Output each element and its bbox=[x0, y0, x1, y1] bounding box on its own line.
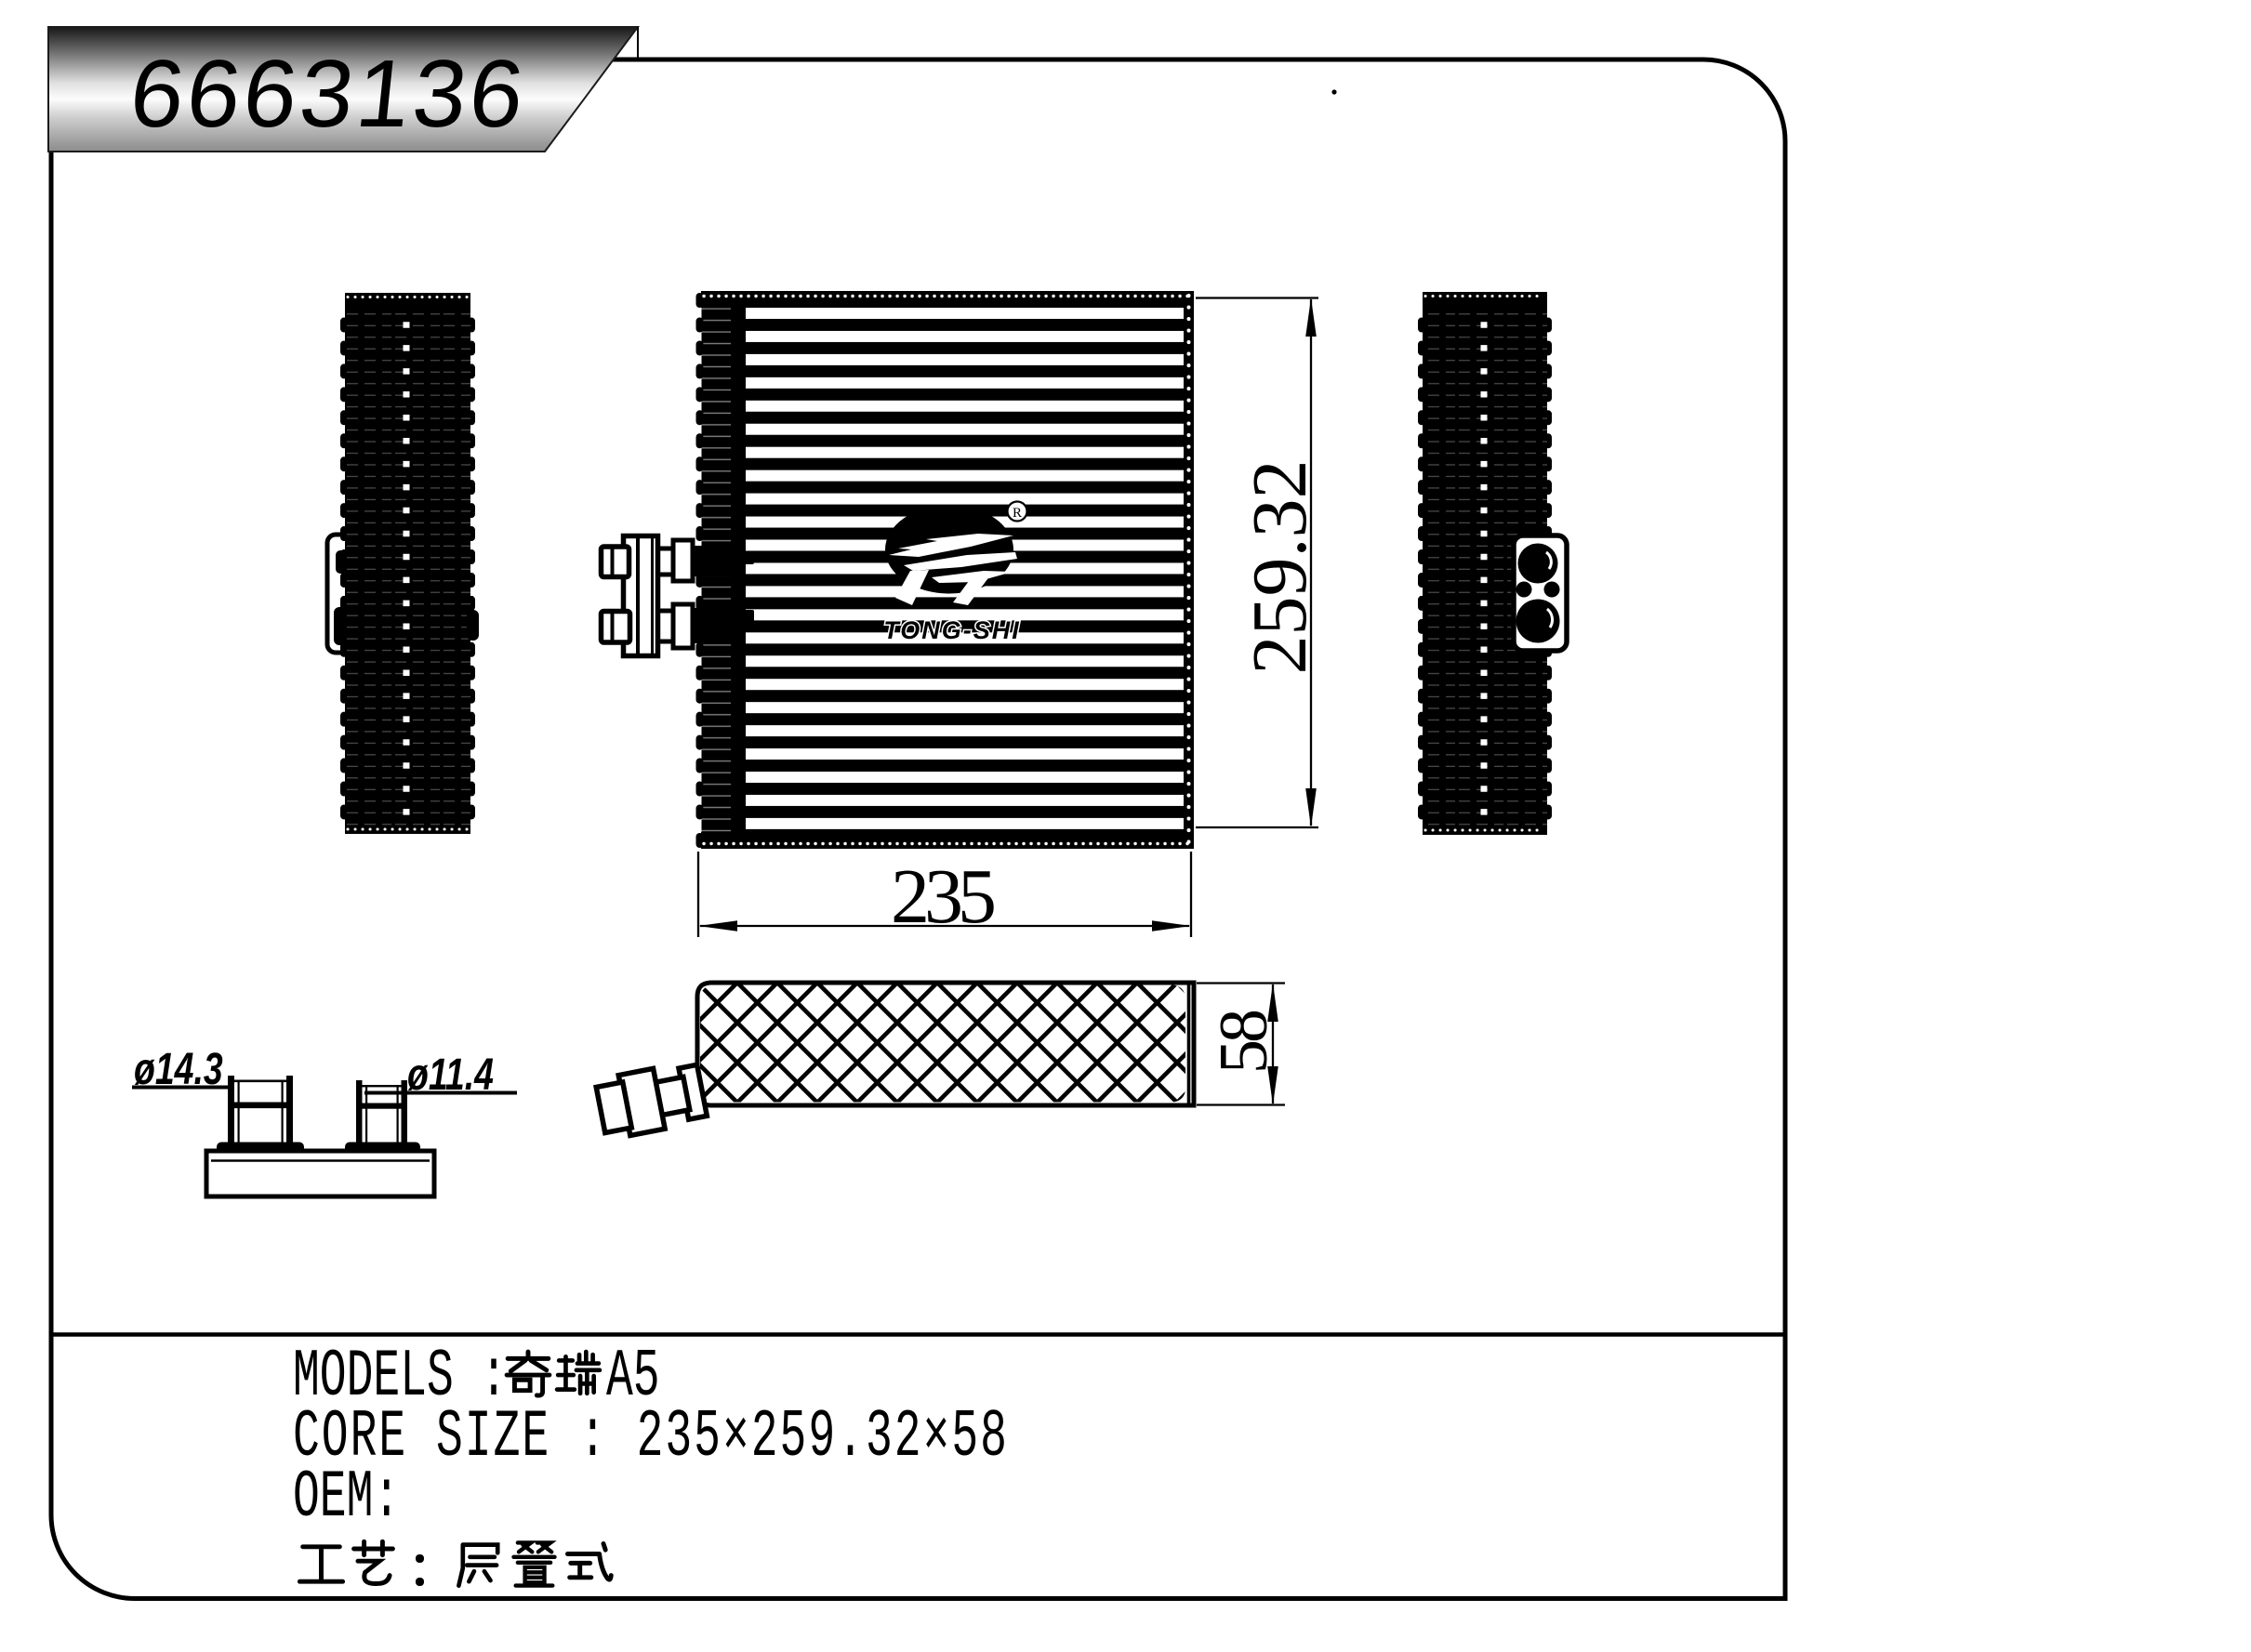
svg-text:235: 235 bbox=[891, 853, 994, 940]
svg-text:CORE SIZE : 235×259.32×58: CORE SIZE : 235×259.32×58 bbox=[293, 1400, 1009, 1475]
svg-text:259.32: 259.32 bbox=[1237, 460, 1323, 675]
svg-text:58: 58 bbox=[1206, 1011, 1282, 1074]
svg-text:OEM:: OEM: bbox=[293, 1460, 400, 1536]
svg-text:TONG-SHI: TONG-SHI bbox=[883, 616, 1021, 644]
svg-text:6663136: 6663136 bbox=[126, 40, 532, 147]
svg-text:R: R bbox=[1013, 506, 1022, 521]
